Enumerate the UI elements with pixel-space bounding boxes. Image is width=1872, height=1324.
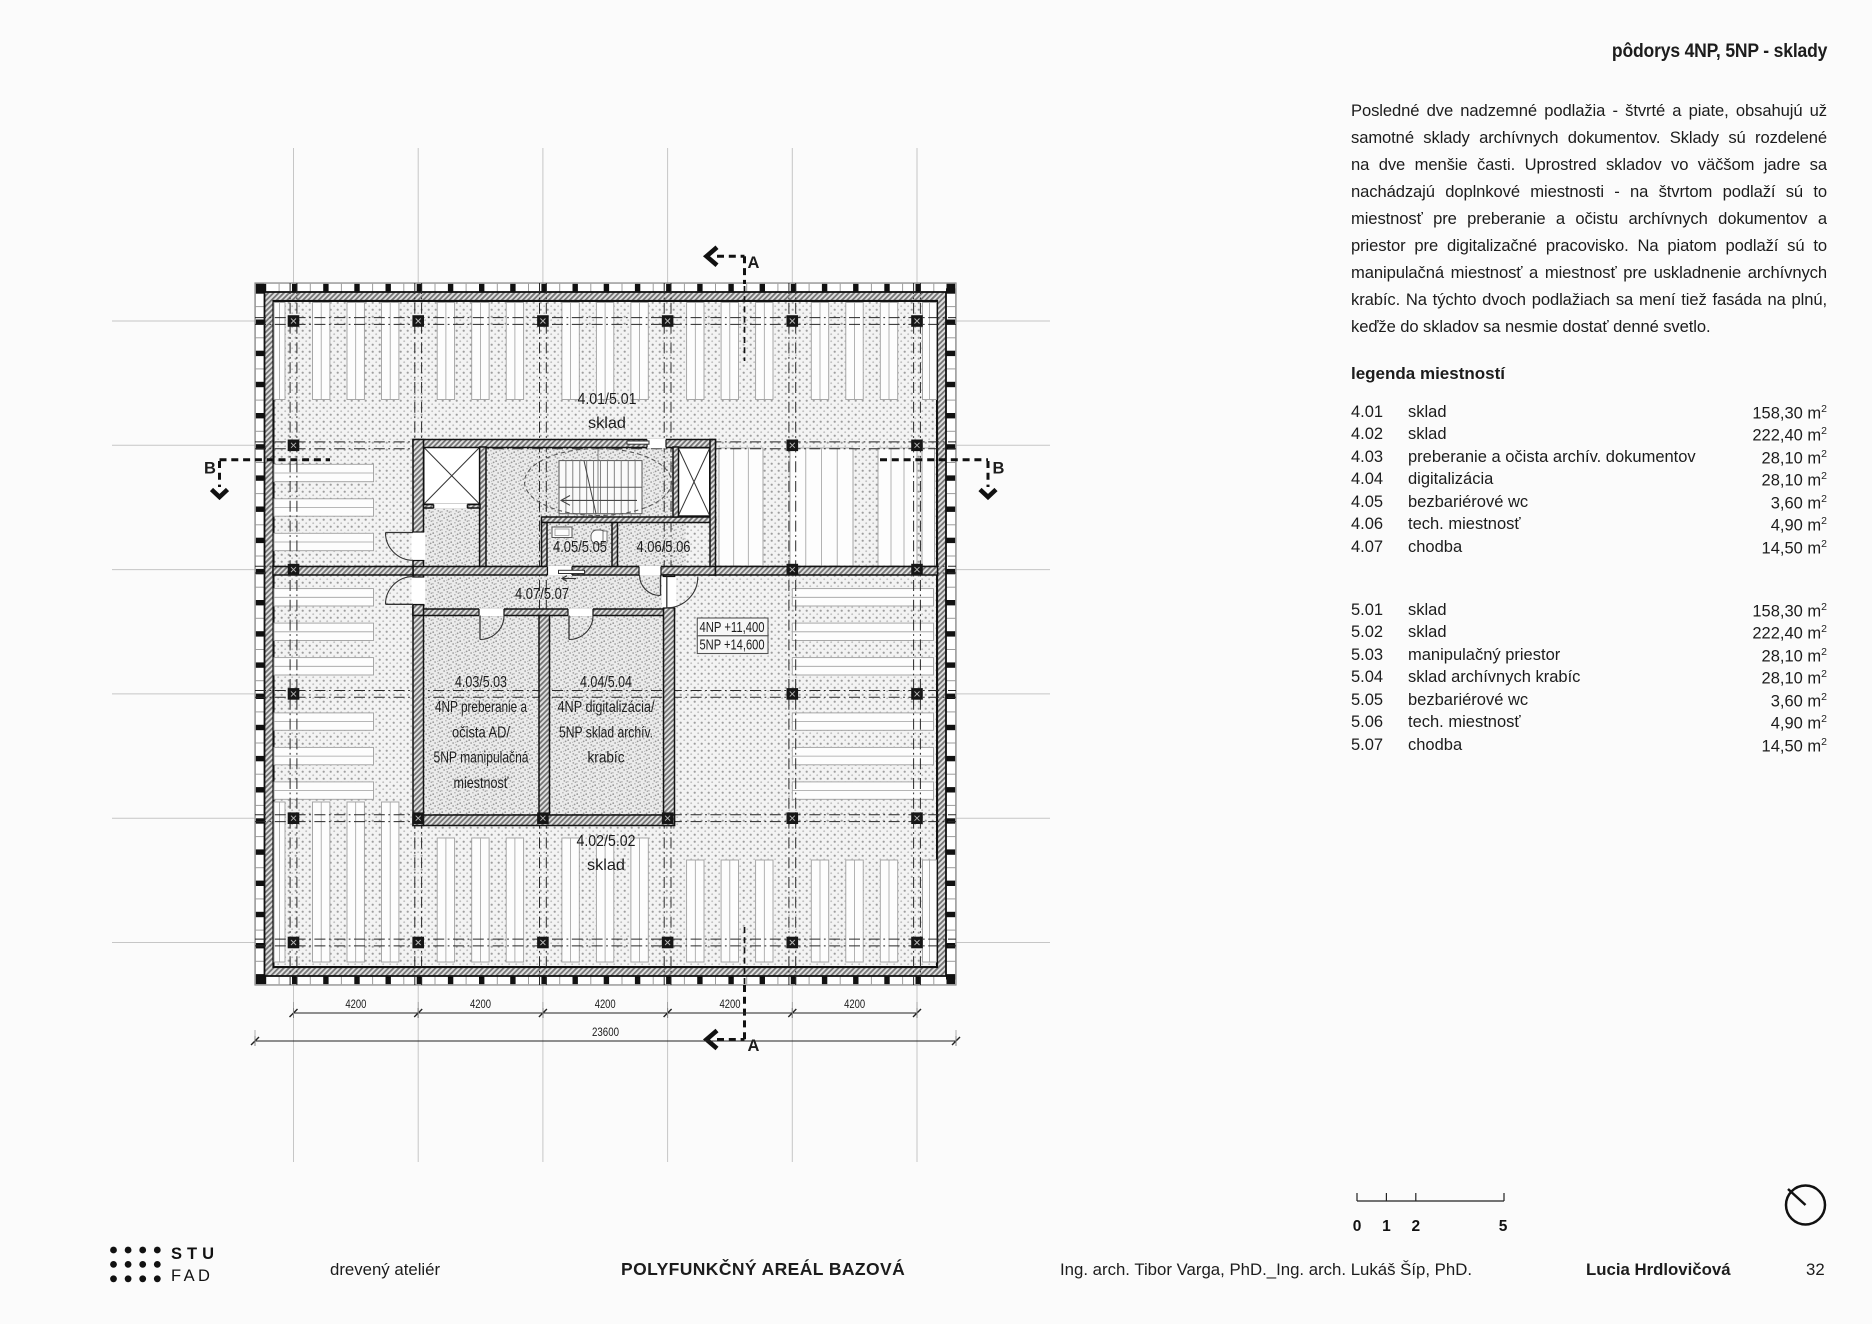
svg-text:4.06/5.06: 4.06/5.06 [637, 539, 691, 556]
svg-text:B: B [993, 460, 1005, 478]
svg-text:sklad: sklad [587, 857, 625, 874]
svg-text:1: 1 [1382, 1218, 1391, 1235]
svg-text:4NP preberanie a: 4NP preberanie a [435, 699, 527, 716]
svg-text:A: A [748, 1037, 760, 1055]
svg-text:4200: 4200 [345, 997, 366, 1011]
svg-text:4200: 4200 [720, 997, 741, 1011]
svg-text:4.03/5.03: 4.03/5.03 [455, 674, 507, 691]
svg-text:A: A [748, 254, 760, 272]
svg-text:4200: 4200 [844, 997, 865, 1011]
svg-text:23600: 23600 [592, 1025, 619, 1039]
svg-text:0: 0 [1353, 1218, 1362, 1235]
svg-text:2: 2 [1411, 1218, 1420, 1235]
svg-text:miestnosť: miestnosť [454, 775, 510, 792]
svg-text:FAD: FAD [171, 1267, 213, 1285]
svg-text:4NP +11,400: 4NP +11,400 [700, 619, 765, 636]
svg-text:krabíc: krabíc [588, 750, 625, 767]
svg-text:4200: 4200 [470, 997, 491, 1011]
svg-text:5: 5 [1499, 1218, 1508, 1235]
svg-text:B: B [204, 460, 216, 478]
svg-text:sklad: sklad [588, 415, 626, 432]
svg-text:5NP +14,600: 5NP +14,600 [700, 637, 765, 654]
svg-text:4.05/5.05: 4.05/5.05 [553, 539, 607, 556]
svg-text:4.07/5.07: 4.07/5.07 [515, 586, 569, 603]
svg-text:STU: STU [171, 1245, 219, 1263]
svg-text:4.04/5.04: 4.04/5.04 [580, 674, 632, 691]
svg-text:4.02/5.02: 4.02/5.02 [577, 833, 636, 850]
svg-text:5NP manipulačná: 5NP manipulačná [434, 750, 529, 767]
svg-text:4NP digitalizácia/: 4NP digitalizácia/ [558, 699, 655, 716]
svg-text:4.01/5.01: 4.01/5.01 [578, 391, 637, 408]
svg-text:5NP sklad archív.: 5NP sklad archív. [559, 724, 653, 741]
svg-text:4200: 4200 [595, 997, 616, 1011]
svg-text:očista AD/: očista AD/ [452, 724, 510, 741]
